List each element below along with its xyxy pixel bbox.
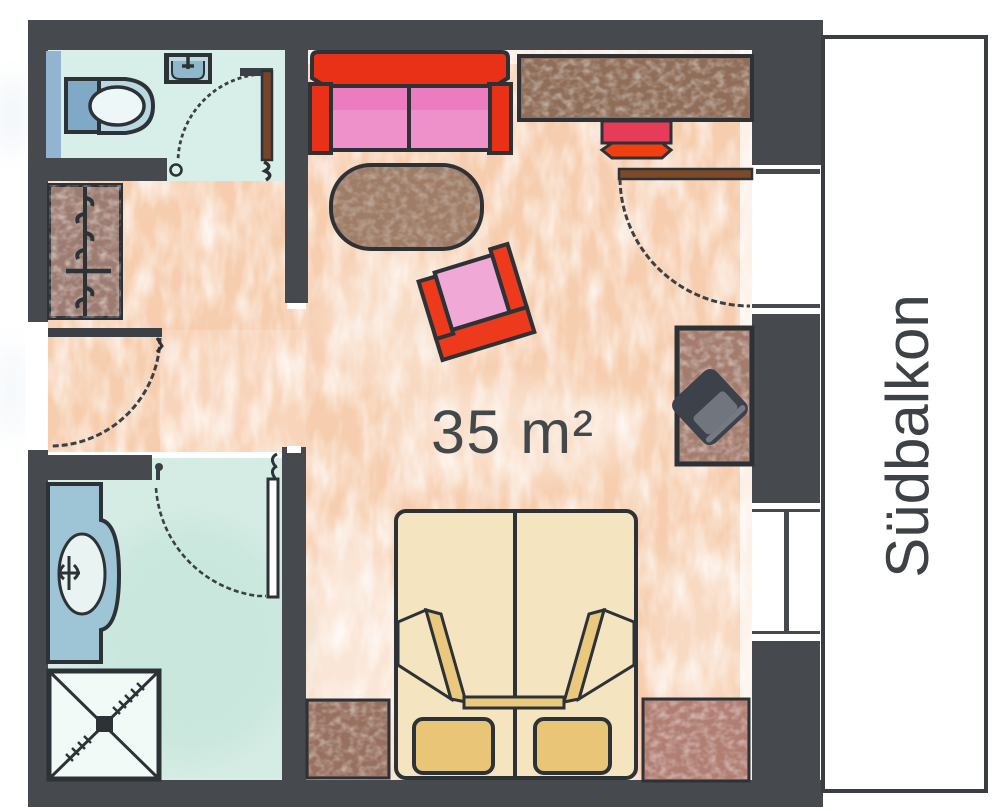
svg-text:35 m²: 35 m²: [431, 398, 594, 466]
svg-text:Südbalkon: Südbalkon: [874, 294, 941, 578]
